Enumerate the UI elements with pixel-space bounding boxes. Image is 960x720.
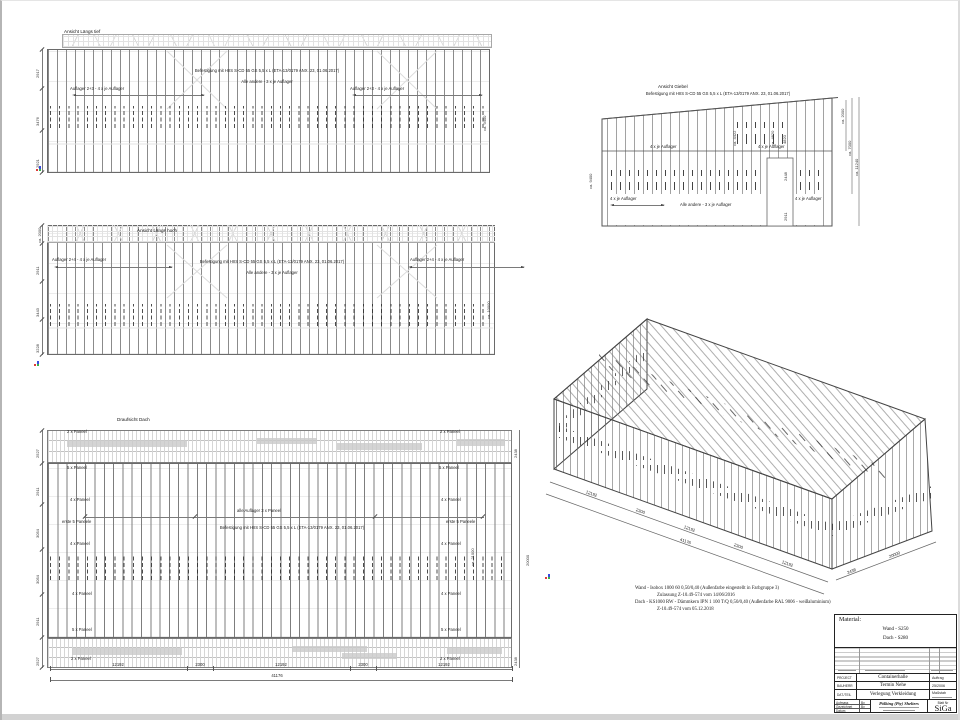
project-row: PROJECT Containerhalle Auftrag bbox=[835, 674, 956, 682]
ucs-axis-icon bbox=[34, 361, 41, 368]
befestigung-note: Befestigung mit HIIS S-CD 55 GS 5,5 x L … bbox=[102, 68, 432, 73]
view-laengs-tief: Ansicht Längs tief Befestigung mit HIIS … bbox=[42, 26, 512, 196]
material-heading: Material: bbox=[839, 617, 861, 623]
dim-label: ca. 4820 bbox=[770, 131, 775, 146]
arrowhead bbox=[169, 266, 173, 268]
paneel-label: 4 x Paneel bbox=[72, 591, 92, 596]
auflager-label-right: Auflager 2+4 - 4 x je Auflager bbox=[410, 257, 464, 262]
dim-label: 2300 bbox=[180, 662, 220, 667]
dim-label: ca. 7000 bbox=[847, 141, 852, 156]
panel-mark-row bbox=[50, 106, 487, 128]
dim-label: ca. 21000 bbox=[470, 548, 475, 566]
dim-label: 2917 bbox=[35, 69, 40, 78]
auflager-label-left: Auflager 2+3 - 4 x je Auflager bbox=[70, 86, 124, 91]
drawing-sheet: Ansicht Längs tief Befestigung mit HIIS … bbox=[0, 0, 960, 720]
arrowhead bbox=[521, 266, 525, 268]
dim-label: ca. 4422 bbox=[732, 131, 737, 146]
view-title: Ansicht Längs hoch bbox=[137, 228, 177, 233]
dim-label: 2438 bbox=[513, 449, 518, 458]
paneel-label: 4 x Paneel bbox=[441, 591, 461, 596]
iso-dim: 2300 bbox=[635, 507, 646, 515]
dim-label: ca. 9400 bbox=[588, 174, 593, 189]
erste-paneele-label: erste 5 Paneele bbox=[62, 519, 91, 524]
erste-paneele-label: erste 5 Paneele bbox=[446, 519, 475, 524]
dim-label: 4820 bbox=[782, 135, 787, 144]
view-laengs-hoch: Ansicht Längs hoch Befestigung mit HIIS … bbox=[42, 219, 512, 364]
auflager-label: 4 x je Auflager bbox=[795, 196, 822, 201]
dim-label-total: 41176 bbox=[257, 673, 297, 678]
bauherr-value: Termin Nehe bbox=[857, 683, 929, 688]
auflager-note: Alle andere - 3 x je Auflager bbox=[102, 270, 442, 275]
auflager-label: 4 x je Auflager bbox=[610, 196, 637, 201]
paneel-label: 4 x Paneel bbox=[441, 497, 461, 502]
paneel-label: 2 x Paneel bbox=[71, 656, 91, 661]
dim-label: 2527 bbox=[35, 657, 40, 666]
dim-label: 2438 bbox=[513, 657, 518, 666]
material-wand: Wand - S250 bbox=[835, 627, 956, 632]
auflager-note: Alle andere - 3 x je Auflager bbox=[102, 79, 432, 84]
teil-row: DAT./TEIL Verlegung Verkleidung Maßstab bbox=[835, 690, 956, 700]
dim-label: 2911 bbox=[35, 487, 40, 496]
auflager-label: 4 x je Auflager bbox=[650, 144, 677, 149]
dim-line bbox=[74, 95, 204, 96]
right-cell: 25/2006 bbox=[932, 684, 945, 688]
dim-label: ca. 2000 bbox=[840, 109, 845, 124]
page-bottom-edge bbox=[2, 714, 960, 720]
note-wand: Wand - Isobox 1000 60 0,50/0,40 (Außenfa… bbox=[635, 585, 831, 592]
dim-label: 20000 bbox=[525, 555, 530, 566]
dim-label: 3476 bbox=[35, 117, 40, 126]
iso-dim: 12192 bbox=[781, 559, 794, 568]
material-dach: Dach - S280 bbox=[835, 636, 956, 641]
dim-label: 2527 bbox=[35, 449, 40, 458]
dim-label: 12192 bbox=[98, 662, 138, 667]
paneel-label: 4 x Paneel bbox=[70, 541, 90, 546]
project-value: Containerhalle bbox=[857, 675, 929, 680]
dim-label: 3054 bbox=[35, 529, 40, 538]
paneel-label: 4 x Paneel bbox=[70, 497, 90, 502]
auflager-label-left: Auflager 2+4 - 4 x je Auflager bbox=[52, 257, 106, 262]
panel-mark-row bbox=[50, 556, 509, 580]
dim-label: 2911 bbox=[35, 617, 40, 626]
dim-line-right bbox=[519, 430, 520, 668]
row-label: BAUHERR bbox=[837, 684, 853, 688]
material-section: Material: Wand - S250 Dach - S280 bbox=[835, 615, 956, 648]
note-dach: Dach - KS1000 RW - Dämmkern IPN 1 100 T/… bbox=[635, 599, 831, 606]
right-cell: Maßstab bbox=[932, 691, 946, 695]
dim-label: ca. 2000 bbox=[37, 228, 42, 243]
ucs-axis-icon bbox=[36, 166, 43, 173]
paneel-label: 4 x Paneel bbox=[441, 541, 461, 546]
arrowhead bbox=[352, 94, 356, 96]
dim-label: 3443 bbox=[35, 308, 40, 317]
note-wand-zulassung: Zulassung Z-10.49-574 vom 14/06/2016 bbox=[635, 592, 831, 599]
dim-label: 3228 bbox=[35, 344, 40, 353]
view-draufsicht-dach: Draufsicht Dach 2 x Paneel 5 x Paneel 4 … bbox=[42, 416, 537, 691]
dim-line bbox=[612, 205, 664, 206]
paneel-label: 5 x Paneel bbox=[441, 627, 461, 632]
dim-label: 2300 bbox=[343, 662, 383, 667]
revision-table bbox=[835, 648, 956, 674]
dim-line bbox=[354, 95, 482, 96]
dim-label: 12192 bbox=[261, 662, 301, 667]
roof-edge-strip bbox=[62, 34, 492, 48]
row-label: DAT./TEIL bbox=[837, 693, 851, 697]
dim-chain-left bbox=[42, 225, 43, 355]
roof-plan-field bbox=[47, 463, 512, 638]
dim-line bbox=[56, 267, 172, 268]
dim-label: 2911 bbox=[783, 212, 788, 221]
paneel-label: 2 x Paneel bbox=[440, 429, 460, 434]
dim-label: 3054 bbox=[35, 575, 40, 584]
iso-3d-view: 12192 2300 12192 2300 12192 41176 2438 2… bbox=[542, 296, 960, 606]
dim-label-right: ca. 10000 bbox=[486, 301, 491, 319]
auflager-line bbox=[84, 517, 484, 518]
note-dach-zulassung: Z-10.49-574 vom 05.12.2018 bbox=[635, 606, 831, 613]
ucs-axis-icon bbox=[545, 574, 552, 581]
title-block: Material: Wand - S250 Dach - S280 PROJEC… bbox=[834, 614, 957, 713]
dim-chain-left bbox=[42, 49, 43, 173]
panel-mark-row bbox=[50, 304, 490, 326]
befestigung-note: Befestigung mit HIIS S-CD 55 GS 5,5 x L … bbox=[608, 91, 828, 96]
roof-edge-strip bbox=[47, 225, 495, 243]
dim-line bbox=[410, 267, 524, 268]
sheet-number: SiGa bbox=[928, 703, 958, 713]
auflager-label-right: Auflager 2+3 - 4 x je Auflager bbox=[350, 86, 404, 91]
arrowhead bbox=[479, 94, 483, 96]
alle-auflager-label: alle Auflager 3 x Paneel bbox=[237, 508, 281, 513]
auflager-note: Alle andere - 3 x je Auflager bbox=[680, 202, 731, 207]
dim-label: 2448 bbox=[783, 172, 788, 181]
befestigung-note: Befestigung mit HIIS S-CD 55 GS 5,5 x L … bbox=[182, 525, 402, 530]
right-cell: Auftrag bbox=[932, 676, 944, 680]
dim-line-total bbox=[50, 680, 513, 681]
arrowhead bbox=[201, 94, 205, 96]
footer-strip: Aufmass By Gezeichnet By Datum Pölking (… bbox=[835, 700, 956, 712]
view-title: Draufsicht Dach bbox=[117, 417, 150, 422]
dim-label: 2911 bbox=[35, 266, 40, 275]
material-notes: Wand - Isobox 1000 60 0,50/0,40 (Außenfa… bbox=[635, 585, 831, 613]
view-title: Ansicht Giebel bbox=[658, 84, 688, 89]
paneel-label: 2 x Paneel bbox=[67, 429, 87, 434]
teil-value: Verlegung Verkleidung bbox=[857, 692, 929, 697]
row-label: PROJECT bbox=[837, 676, 852, 680]
paneel-label: 2 x Paneel bbox=[440, 656, 460, 661]
bauherr-row: BAUHERR Termin Nehe 25/2006 bbox=[835, 682, 956, 690]
view-giebel: Ansicht Giebel Befestigung mit HIIS S-CD… bbox=[580, 84, 880, 234]
dim-line-bottom bbox=[50, 669, 513, 670]
iso-dim: 12192 bbox=[683, 524, 696, 533]
iso-dim: 2300 bbox=[733, 542, 744, 550]
sign-label: Datum bbox=[836, 709, 845, 713]
dim-label: ca. 11240 bbox=[854, 159, 859, 176]
paneel-label: 5 x Paneel bbox=[72, 627, 92, 632]
paneel-label: 5 x Paneel bbox=[439, 465, 459, 470]
befestigung-note: Befestigung mit HIIS S-CD 55 GS 5,5 x L … bbox=[102, 259, 442, 264]
arrowhead bbox=[72, 94, 76, 96]
dim-label: 12192 bbox=[424, 662, 464, 667]
gable-drawing bbox=[580, 84, 880, 234]
company-name: Pölking (Pty) Shelters bbox=[871, 701, 927, 706]
dim-label-right: ca. 9400 bbox=[482, 116, 487, 131]
arrowhead bbox=[408, 266, 412, 268]
paneel-label: 5 x Paneel bbox=[67, 465, 87, 470]
arrowhead bbox=[54, 266, 58, 268]
